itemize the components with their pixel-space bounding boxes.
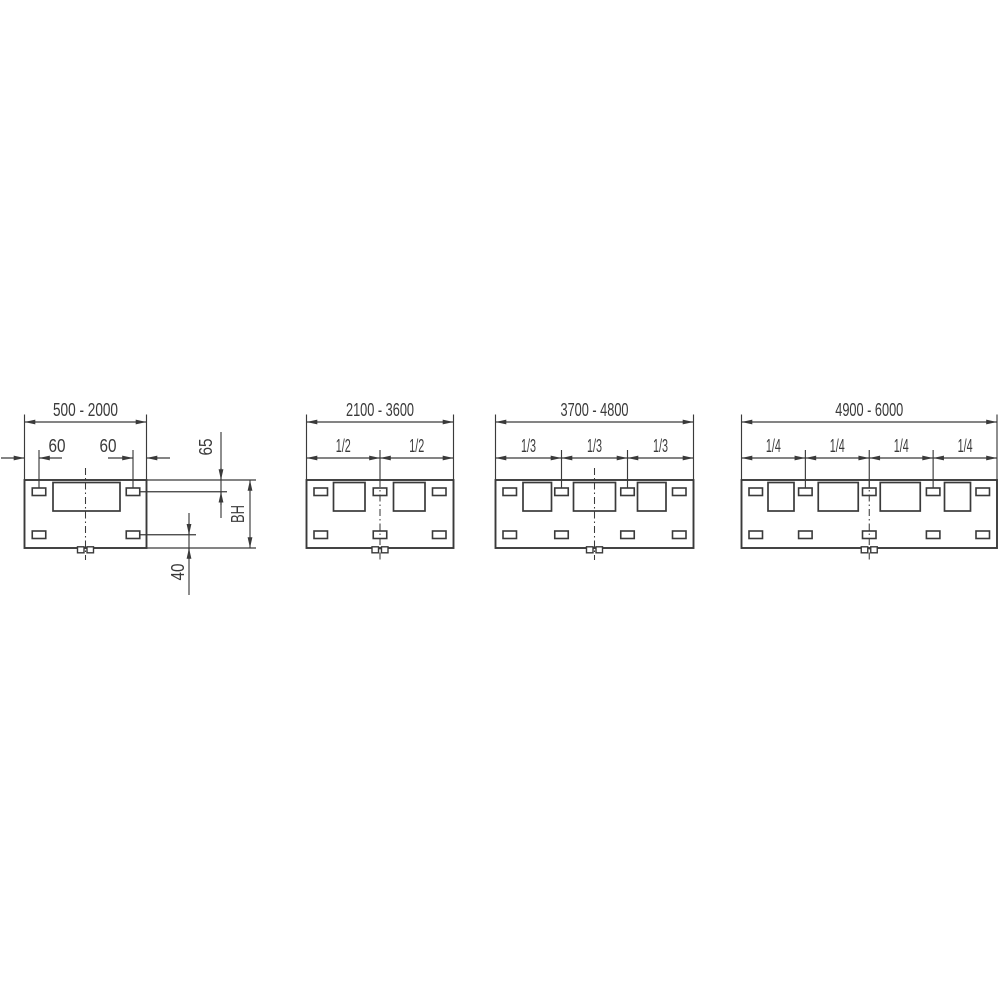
- cutout: [880, 483, 920, 512]
- diagram-width-2100-3600: 2100 - 3600 1/2 1/2: [307, 400, 454, 560]
- mounting-tab: [587, 547, 594, 553]
- fraction-label: 1/4: [958, 436, 973, 456]
- cutout: [818, 483, 858, 512]
- cutout: [945, 483, 971, 512]
- mounting-slot: [863, 488, 877, 496]
- technical-drawing: 500 - 2000 60 60 65 BH 40: [0, 0, 1000, 1000]
- range-label: 3700 - 4800: [561, 400, 629, 420]
- cutout: [334, 483, 366, 512]
- mounting-slot: [976, 531, 990, 539]
- range-label: 4900 - 6000: [835, 400, 903, 420]
- mounting-slot: [926, 488, 940, 496]
- cutout: [523, 483, 552, 512]
- mounting-slot: [32, 531, 46, 539]
- range-label: 2100 - 3600: [346, 400, 414, 420]
- mounting-slot: [555, 488, 569, 496]
- mounting-slot: [314, 488, 328, 496]
- mounting-slot: [749, 488, 763, 496]
- fraction-label: 1/2: [336, 436, 351, 456]
- mounting-tab: [871, 547, 878, 553]
- mounting-tab: [382, 547, 389, 553]
- fraction-label: 1/4: [894, 436, 909, 456]
- mounting-slot: [799, 488, 813, 496]
- diagram-width-500-2000: 500 - 2000 60 60 65 BH 40: [1, 400, 256, 595]
- fraction-label: 1/3: [521, 436, 536, 456]
- mounting-slot: [673, 531, 687, 539]
- mounting-slot: [976, 488, 990, 496]
- mounting-slot: [433, 488, 447, 496]
- mounting-tab: [372, 547, 379, 553]
- mounting-tab: [596, 547, 603, 553]
- mounting-tab: [87, 547, 94, 553]
- mounting-slot: [749, 531, 763, 539]
- mounting-slot: [433, 531, 447, 539]
- mounting-slot: [673, 488, 687, 496]
- mounting-slot: [503, 488, 517, 496]
- cutout: [768, 483, 794, 512]
- label-65: 65: [196, 439, 216, 456]
- fraction-label: 1/3: [653, 436, 668, 456]
- fraction-label: 1/3: [587, 436, 602, 456]
- fraction-label: 1/2: [409, 436, 424, 456]
- offset-label-60-right: 60: [100, 436, 117, 456]
- mounting-slot: [555, 531, 569, 539]
- mounting-slot: [126, 531, 140, 539]
- diagram-width-3700-4800: 3700 - 4800 1/3 1/3 1/3: [496, 400, 694, 560]
- mounting-tab: [861, 547, 868, 553]
- fraction-label: 1/4: [830, 436, 845, 456]
- label-bh: BH: [228, 505, 248, 523]
- mounting-slot: [621, 488, 635, 496]
- fraction-label: 1/4: [766, 436, 781, 456]
- cutout: [394, 483, 426, 512]
- cutout: [53, 483, 120, 512]
- diagram-width-4900-6000: 4900 - 6000 1/4 1/4 1/4 1/4: [742, 400, 998, 560]
- mounting-slot: [799, 531, 813, 539]
- mounting-tab: [78, 547, 85, 553]
- mounting-slot: [314, 531, 328, 539]
- label-40: 40: [168, 564, 188, 581]
- mounting-slot: [32, 488, 46, 496]
- mounting-slot: [503, 531, 517, 539]
- offset-label-60-left: 60: [49, 436, 66, 456]
- mounting-slot: [126, 488, 140, 496]
- range-label: 500 - 2000: [53, 400, 118, 420]
- mounting-slot: [373, 488, 387, 496]
- cutout: [638, 483, 667, 512]
- mounting-slot: [926, 531, 940, 539]
- mounting-slot: [621, 531, 635, 539]
